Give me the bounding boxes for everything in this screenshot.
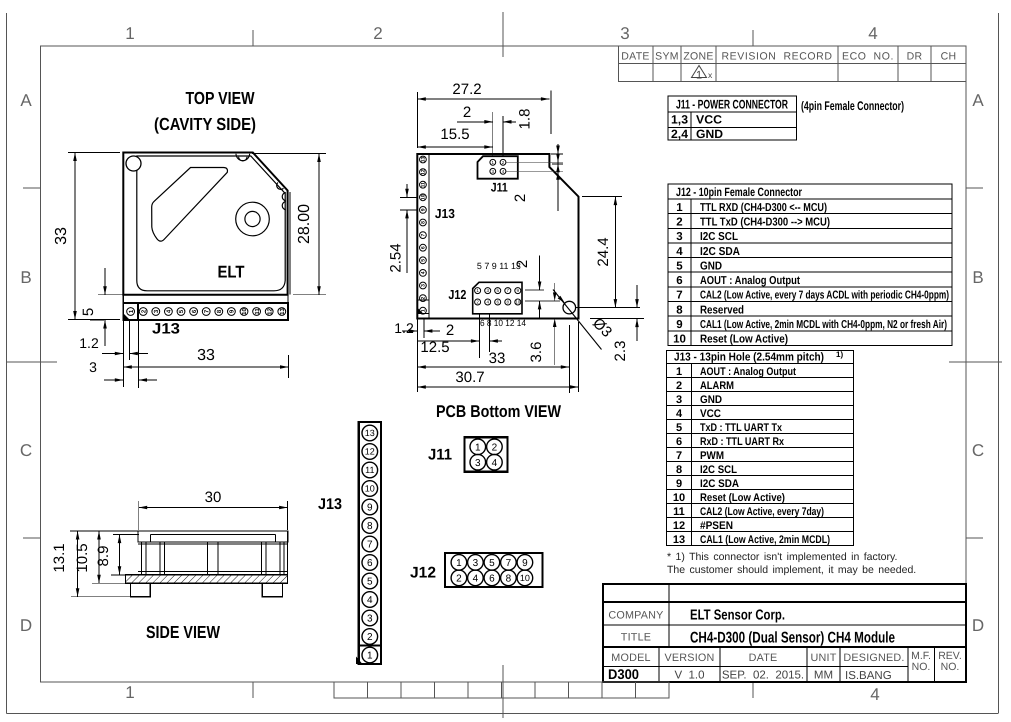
svg-text:9: 9: [522, 558, 528, 569]
svg-text:2: 2: [456, 574, 462, 585]
svg-text:1: 1: [676, 202, 683, 214]
svg-text:DESIGNED.: DESIGNED.: [843, 652, 904, 664]
svg-text:12.5: 12.5: [420, 339, 449, 356]
svg-text:6: 6: [489, 574, 495, 585]
svg-text:D: D: [972, 616, 984, 635]
svg-text:J11: J11: [428, 447, 452, 464]
svg-text:J12 - 10pin Female Connector: J12 - 10pin Female Connector: [676, 185, 802, 199]
svg-text:CAL2 (Low Active, every 7 days: CAL2 (Low Active, every 7 days ACDL with…: [700, 290, 949, 302]
svg-text:5: 5: [489, 558, 495, 569]
svg-text:10: 10: [421, 194, 427, 200]
svg-text:2,4: 2,4: [671, 127, 688, 141]
svg-text:AOUT : Analog Output: AOUT : Analog Output: [700, 275, 800, 287]
svg-text:J13: J13: [152, 321, 180, 338]
svg-text:MODEL: MODEL: [611, 652, 650, 664]
svg-text:Reset (Low Active): Reset (Low Active): [700, 492, 785, 504]
svg-text:2: 2: [373, 24, 382, 43]
svg-text:5: 5: [367, 577, 373, 588]
svg-text:3: 3: [475, 458, 481, 469]
svg-text:2: 2: [676, 380, 682, 392]
svg-text:B: B: [20, 268, 31, 287]
svg-text:3: 3: [421, 284, 427, 287]
svg-text:I2C SDA: I2C SDA: [700, 246, 740, 258]
svg-text:7: 7: [367, 540, 373, 551]
svg-text:10: 10: [520, 573, 530, 583]
svg-text:2: 2: [463, 104, 471, 121]
svg-text:13: 13: [673, 534, 685, 546]
svg-text:4: 4: [870, 685, 879, 704]
svg-text:1: 1: [125, 24, 134, 43]
svg-text:1: 1: [421, 309, 427, 312]
svg-text:C: C: [972, 441, 984, 460]
svg-text:(4pin Female Connector): (4pin Female Connector): [801, 99, 904, 113]
svg-text:GND: GND: [700, 260, 722, 272]
svg-text:TxD : TTL UART Tx: TxD : TTL UART Tx: [700, 422, 783, 434]
svg-text:33: 33: [53, 227, 70, 245]
svg-text:The customer should impleme: The customer should implement, it may be…: [667, 564, 916, 576]
svg-text:10: 10: [515, 300, 521, 305]
svg-text:B: B: [972, 268, 983, 287]
svg-text:5: 5: [676, 422, 682, 434]
svg-text:TOP VIEW: TOP VIEW: [186, 88, 255, 108]
svg-text:4: 4: [868, 24, 877, 43]
svg-text:1: 1: [125, 683, 134, 702]
svg-text:3: 3: [676, 394, 682, 406]
svg-text:SEP. 02. 2015.: SEP. 02. 2015.: [722, 670, 804, 682]
svg-text:15.5: 15.5: [440, 126, 469, 143]
svg-text:1,3: 1,3: [671, 113, 688, 127]
svg-text:A: A: [20, 91, 32, 110]
svg-text:J13 - 13pin Hole (2.54mm pitch: J13 - 13pin Hole (2.54mm pitch): [674, 352, 824, 364]
svg-text:J12: J12: [410, 565, 436, 582]
svg-text:#PSEN: #PSEN: [700, 520, 733, 532]
svg-text:10: 10: [673, 334, 686, 346]
svg-text:30: 30: [205, 489, 222, 506]
svg-text:33: 33: [489, 350, 506, 367]
svg-text:6 8 10 12 14: 6 8 10 12 14: [480, 318, 526, 328]
svg-text:7: 7: [421, 233, 427, 236]
svg-text:2: 2: [512, 194, 529, 202]
svg-text:8: 8: [421, 221, 427, 224]
svg-text:5: 5: [80, 308, 97, 316]
svg-text:24.4: 24.4: [595, 237, 612, 266]
svg-text:I2C SCL: I2C SCL: [700, 231, 738, 243]
svg-text:2: 2: [514, 260, 531, 268]
svg-text:3: 3: [676, 231, 682, 243]
svg-text:VERSION: VERSION: [665, 652, 715, 664]
svg-text:ALARM: ALARM: [700, 380, 734, 392]
svg-text:UNIT: UNIT: [811, 652, 837, 664]
svg-text:12: 12: [421, 169, 427, 175]
svg-text:ELT Sensor Corp.: ELT Sensor Corp.: [690, 608, 785, 624]
svg-text:D: D: [20, 616, 32, 635]
svg-text:CH: CH: [941, 51, 957, 63]
svg-text:2.3: 2.3: [612, 341, 629, 362]
svg-text:4: 4: [473, 574, 479, 585]
svg-text:13: 13: [421, 157, 427, 163]
svg-text:CAL1 (Low Active, 2min MCDL wi: CAL1 (Low Active, 2min MCDL with CH4-0pp…: [700, 319, 947, 331]
svg-text:A: A: [972, 91, 984, 110]
svg-text:ECO NO.: ECO NO.: [842, 51, 894, 63]
svg-text:8.9: 8.9: [95, 546, 112, 567]
svg-text:SIDE VIEW: SIDE VIEW: [146, 622, 220, 642]
svg-text:SYM: SYM: [655, 51, 679, 63]
svg-text:3.6: 3.6: [528, 342, 545, 363]
svg-text:PWM: PWM: [700, 450, 724, 462]
svg-text:9: 9: [421, 208, 427, 211]
svg-text:8: 8: [676, 464, 682, 476]
svg-text:1): 1): [836, 350, 843, 359]
svg-text:ZONE: ZONE: [683, 51, 713, 63]
svg-text:6: 6: [367, 558, 373, 569]
svg-text:RxD : TTL UART Rx: RxD : TTL UART Rx: [700, 436, 785, 448]
svg-text:6: 6: [676, 275, 682, 287]
svg-text:COMPANY: COMPANY: [608, 610, 663, 622]
svg-text:CH4-D300 (Dual Sensor) CH4 Mod: CH4-D300 (Dual Sensor) CH4 Module: [690, 630, 895, 647]
svg-text:J13: J13: [318, 496, 342, 513]
svg-text:1: 1: [456, 558, 462, 569]
svg-text:6: 6: [421, 246, 427, 249]
svg-text:NO.: NO.: [912, 661, 931, 673]
svg-text:2: 2: [421, 296, 427, 299]
svg-text:4: 4: [367, 595, 373, 606]
svg-text:6: 6: [676, 436, 682, 448]
svg-text:MM: MM: [814, 670, 833, 682]
svg-text:2: 2: [492, 442, 498, 453]
svg-text:1: 1: [367, 651, 373, 662]
svg-text:ELT: ELT: [218, 263, 246, 282]
svg-text:13.1: 13.1: [51, 543, 68, 572]
svg-text:VCC: VCC: [696, 113, 722, 127]
svg-text:NO.: NO.: [941, 661, 960, 673]
svg-text:3: 3: [620, 24, 629, 43]
svg-text:DATE: DATE: [749, 652, 778, 664]
svg-text:10.5: 10.5: [74, 543, 91, 572]
svg-text:5: 5: [676, 260, 683, 272]
svg-text:8: 8: [367, 521, 373, 532]
svg-text:4: 4: [492, 458, 498, 469]
svg-text:3: 3: [89, 359, 97, 375]
svg-text:2: 2: [676, 217, 682, 229]
svg-text:12: 12: [673, 520, 685, 532]
svg-text:4: 4: [421, 271, 427, 274]
svg-text:(CAVITY SIDE): (CAVITY SIDE): [154, 114, 256, 134]
svg-text:9: 9: [676, 478, 682, 490]
svg-text:GND: GND: [696, 127, 723, 141]
svg-text:I2C SCL: I2C SCL: [700, 464, 737, 476]
svg-text:J11: J11: [491, 181, 508, 195]
svg-text:27.2: 27.2: [452, 81, 481, 98]
svg-text:7: 7: [676, 290, 682, 302]
svg-text:13: 13: [279, 308, 286, 315]
svg-text:11: 11: [365, 465, 374, 475]
svg-text:GND: GND: [700, 394, 722, 406]
svg-text:2: 2: [367, 632, 373, 643]
svg-text:DR: DR: [907, 51, 923, 63]
svg-text:12: 12: [266, 308, 273, 315]
svg-text:1.8: 1.8: [517, 109, 534, 130]
svg-text:28.00: 28.00: [296, 204, 313, 244]
svg-text:7: 7: [506, 558, 512, 569]
svg-text:33: 33: [197, 347, 215, 364]
svg-text:12: 12: [365, 447, 375, 457]
svg-text:11: 11: [254, 308, 261, 315]
svg-text:1: 1: [676, 366, 682, 378]
svg-text:7: 7: [676, 450, 682, 462]
svg-text:3: 3: [367, 614, 373, 625]
svg-text:I2C SDA: I2C SDA: [700, 478, 739, 490]
svg-text:CAL1 (Low Active, 2min MCDL): CAL1 (Low Active, 2min MCDL): [700, 534, 830, 546]
svg-text:5: 5: [421, 259, 427, 262]
svg-text:C: C: [20, 441, 32, 460]
svg-text:1: 1: [475, 442, 481, 453]
svg-text:Reset (Low Active): Reset (Low Active): [700, 334, 788, 346]
svg-text:AOUT : Analog Output: AOUT : Analog Output: [700, 366, 796, 378]
svg-text:2.54: 2.54: [388, 243, 405, 272]
svg-text:1: 1: [696, 70, 702, 82]
svg-text:4: 4: [676, 246, 683, 258]
svg-text:D300: D300: [608, 666, 639, 682]
svg-text:1.2: 1.2: [79, 335, 99, 351]
svg-text:4: 4: [676, 408, 683, 420]
svg-text:10: 10: [673, 492, 685, 504]
svg-text:V 1.0: V 1.0: [674, 670, 704, 682]
svg-text:30.7: 30.7: [455, 369, 484, 386]
svg-text:IS.BANG: IS.BANG: [845, 670, 892, 682]
svg-text:J13: J13: [435, 206, 455, 221]
svg-text:10: 10: [241, 308, 248, 315]
svg-text:TTL RXD (CH4-D300 <-- MCU): TTL RXD (CH4-D300 <-- MCU): [700, 202, 827, 214]
svg-text:3: 3: [473, 558, 479, 569]
svg-text:1.2: 1.2: [394, 320, 414, 336]
svg-text:TTL TxD (CH4-D300 --> MCU): TTL TxD (CH4-D300 --> MCU): [700, 217, 830, 229]
svg-text:8: 8: [676, 304, 683, 316]
svg-text:11: 11: [421, 182, 427, 188]
svg-text:11: 11: [673, 506, 685, 518]
svg-text:CAL2 (Low Active, every 7day): CAL2 (Low Active, every 7day): [700, 506, 824, 518]
svg-text:9: 9: [676, 319, 682, 331]
svg-text:8: 8: [506, 574, 512, 585]
svg-text:J11 - POWER CONNECTOR: J11 - POWER CONNECTOR: [676, 98, 788, 112]
svg-text:DATE: DATE: [621, 51, 649, 63]
svg-text:TITLE: TITLE: [621, 632, 651, 644]
svg-text:J12: J12: [448, 287, 466, 302]
svg-text:9: 9: [367, 503, 373, 514]
svg-text:2: 2: [446, 322, 454, 339]
svg-text:REVISION RECORD: REVISION RECORD: [721, 51, 832, 63]
svg-text:VCC: VCC: [700, 408, 721, 420]
svg-text:10: 10: [365, 484, 375, 494]
svg-text:PCB Bottom VIEW: PCB Bottom VIEW: [436, 402, 562, 421]
svg-text:* 1) This connector isn't i: * 1) This connector isn't implemented in…: [667, 551, 897, 563]
svg-text:Reserved: Reserved: [700, 304, 744, 316]
svg-text:13: 13: [365, 428, 375, 438]
